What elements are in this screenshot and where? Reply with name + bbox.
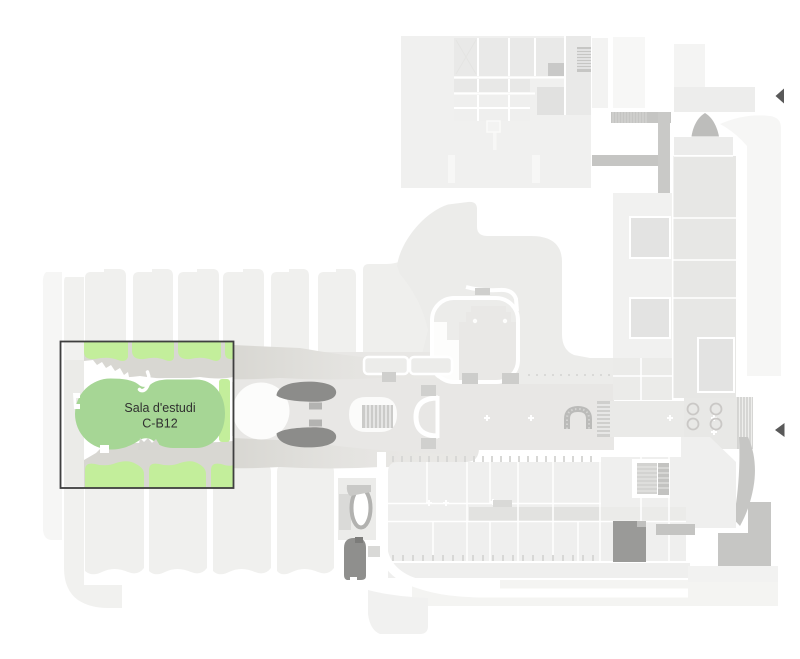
svg-text:Sala d'estudi: Sala d'estudi	[124, 401, 195, 415]
svg-text:C-B12: C-B12	[142, 417, 177, 431]
